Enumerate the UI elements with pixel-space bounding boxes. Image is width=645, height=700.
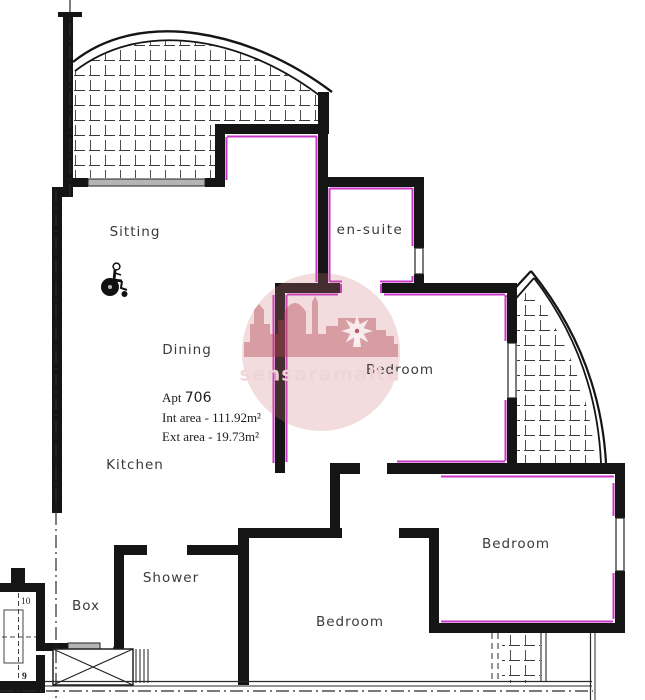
- window-bedroom-top-right: [508, 343, 516, 398]
- watermark: [242, 273, 400, 431]
- sliding-window-sitting: [88, 179, 205, 186]
- room-label-box: Box: [72, 598, 100, 614]
- room-label-kitchen: Kitchen: [106, 457, 164, 473]
- room-label-bedroom-bottom-right: Bedroom: [482, 536, 550, 552]
- room-label-shower: Shower: [143, 570, 199, 586]
- stair-step-number-top: 10: [21, 597, 31, 607]
- terrace-tiles-right: [517, 288, 595, 463]
- room-label-sitting: Sitting: [110, 224, 161, 240]
- floor-plan-drawing: [0, 0, 645, 700]
- watermark-text: sensaramalta: [240, 363, 401, 386]
- yard-tiles-bottom: [502, 633, 540, 683]
- wheelchair-accessibility-icon: [101, 263, 128, 297]
- apartment-number-line: Apt 706: [162, 388, 261, 408]
- windmill-icon: [341, 315, 373, 347]
- room-label-dining: Dining: [162, 342, 212, 358]
- floor-plan: Sitting Dining Kitchen en-suite Bedroom …: [0, 0, 645, 700]
- external-area: Ext area - 19.73m²: [162, 427, 261, 446]
- apartment-info: Apt 706 Int area - 111.92m² Ext area - 1…: [162, 388, 261, 446]
- apt-label: Apt: [162, 390, 182, 405]
- lift-shaft: [53, 649, 148, 685]
- room-label-bedroom-bottom-center: Bedroom: [316, 614, 384, 630]
- window-ensuite: [415, 248, 423, 274]
- stair-step-number-bottom: 9: [22, 672, 27, 682]
- window-bedroom-bottom-right: [616, 518, 624, 571]
- apt-number: 706: [185, 390, 212, 406]
- internal-area: Int area - 111.92m²: [162, 408, 261, 427]
- room-label-ensuite: en-suite: [337, 222, 404, 238]
- sill-box: [68, 643, 100, 649]
